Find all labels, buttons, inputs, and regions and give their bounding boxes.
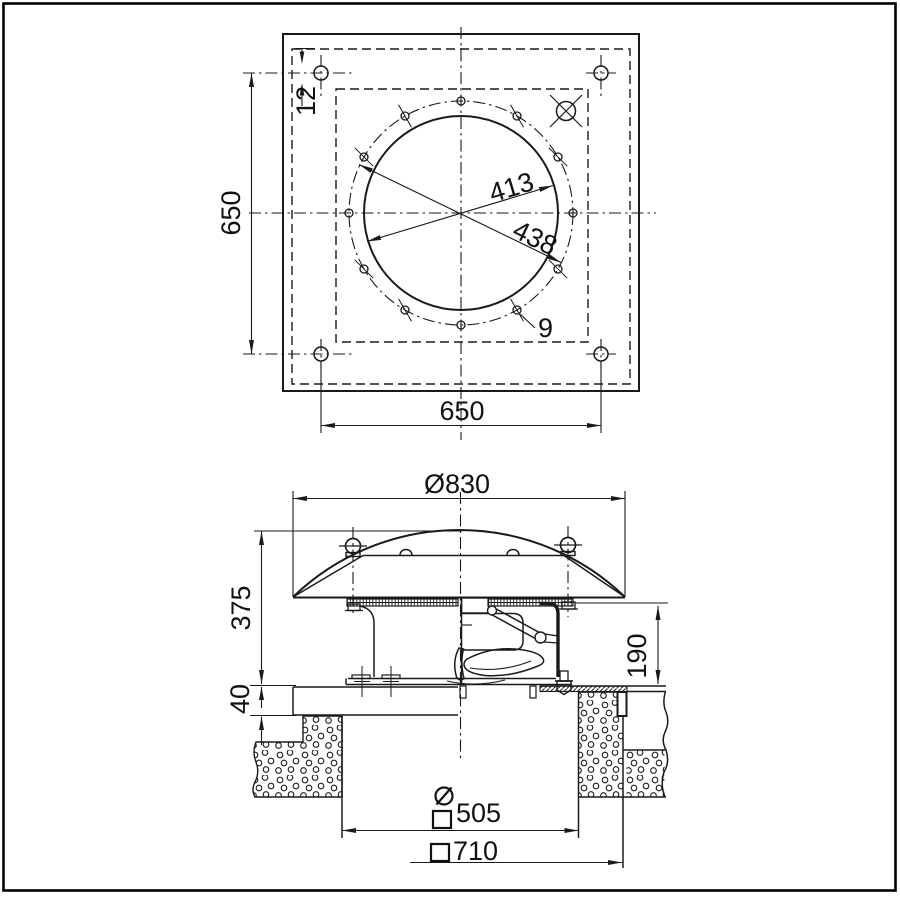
dim-total-height: 375	[226, 531, 462, 686]
roof-fan-drawing: 413 438 9 12 650	[0, 0, 900, 900]
dim-hood-diameter: Ø830	[293, 469, 625, 597]
hood-cap-nut-left	[400, 550, 412, 556]
dim-inner-circle-label: 413	[485, 166, 537, 208]
dim-plate-width-label: 650	[439, 396, 484, 426]
dim-hole-9-label: 9	[538, 313, 553, 343]
page-border	[4, 4, 896, 891]
crossed-circle-icon	[550, 95, 582, 127]
dim-corner-hole-12: 12	[291, 49, 321, 117]
plate-bolt-marks	[354, 666, 399, 697]
square-symbol-icon	[431, 844, 449, 861]
square-symbol-icon	[433, 811, 451, 828]
insulation-right	[579, 692, 624, 797]
side-view: Ø830	[225, 469, 668, 868]
dim-plate-height-label: 650	[216, 190, 246, 235]
dim-opening: 505	[342, 788, 579, 834]
insulation-right-outer	[627, 750, 665, 797]
hood-cap-nut-right	[507, 550, 519, 556]
top-view: 413 438 9 12 650	[216, 27, 656, 440]
insulation-left	[253, 716, 342, 797]
curb-section	[618, 692, 627, 716]
diameter-symbol-icon	[436, 788, 453, 805]
technical-drawing-page: 413 438 9 12 650	[0, 0, 900, 900]
dim-bolt-circle-label: 438	[508, 215, 562, 262]
dim-casing-height: 190	[575, 603, 668, 684]
dim-plate-height: 650	[216, 73, 254, 354]
dim-corner-hole-label: 12	[291, 86, 321, 116]
base-plate	[346, 666, 573, 698]
dim-base: 710	[410, 836, 622, 866]
dim-hole-9: 9	[520, 313, 553, 343]
dim-base-label: 710	[453, 836, 498, 866]
dim-total-height-label: 375	[226, 585, 256, 630]
dim-roof-offset: 40	[225, 684, 296, 745]
dim-roof-offset-label: 40	[225, 684, 255, 714]
dim-hood-diameter-label: Ø830	[424, 469, 490, 499]
dim-casing-height-label: 190	[622, 633, 652, 678]
dim-opening-label: 505	[456, 798, 501, 828]
fan-casing	[360, 598, 558, 684]
flashing-hatch	[540, 686, 627, 692]
